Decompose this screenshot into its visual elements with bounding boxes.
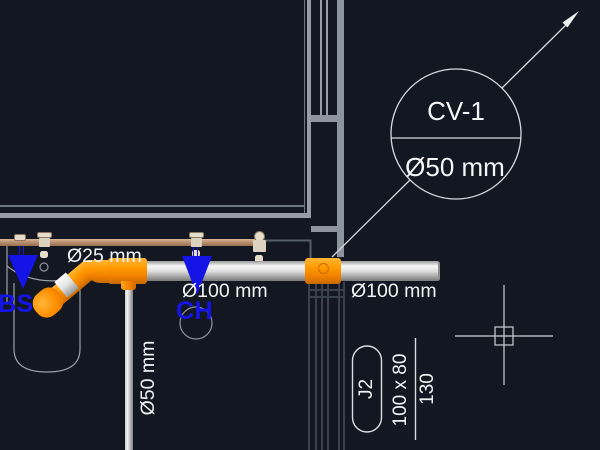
callout-circle[interactable] bbox=[391, 69, 521, 199]
cad-drawing-canvas[interactable]: BS CH Ø25 mm Ø100 mm Ø100 mm Ø50 mm CV-1… bbox=[0, 0, 600, 450]
leader-line-upper[interactable] bbox=[502, 24, 567, 88]
crosshair-cursor-icon bbox=[455, 285, 553, 385]
leader-arrowhead-icon bbox=[563, 11, 580, 28]
leader-line-lower[interactable] bbox=[332, 180, 410, 257]
duct-tag-capsule[interactable] bbox=[353, 346, 382, 432]
annotation-overlay-layer bbox=[0, 0, 600, 450]
